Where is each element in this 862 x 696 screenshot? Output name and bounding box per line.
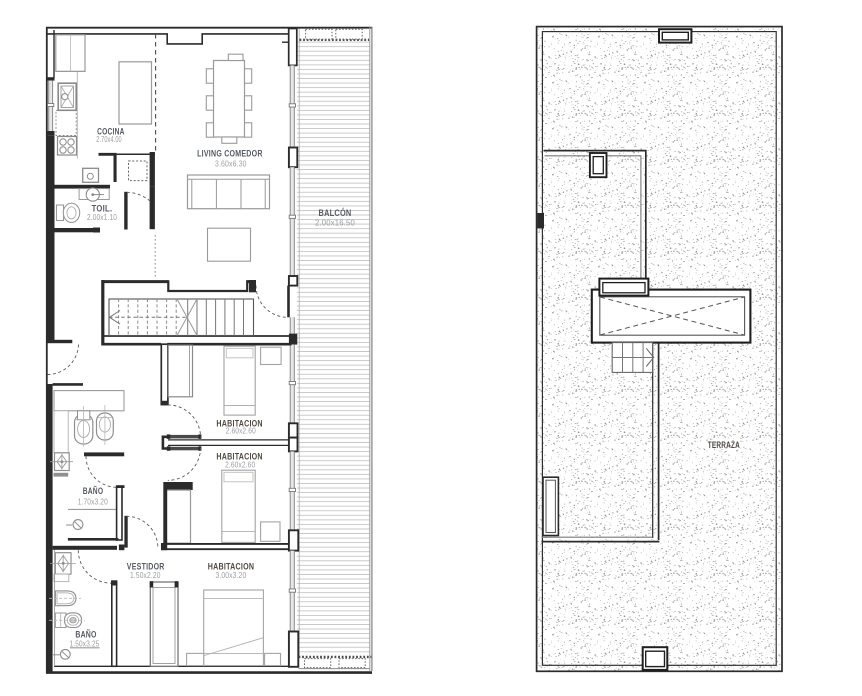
svg-text:2.60x2.60: 2.60x2.60: [226, 426, 256, 436]
svg-text:LIVING COMEDOR: LIVING COMEDOR: [197, 148, 263, 158]
svg-text:2.60x2.60: 2.60x2.60: [225, 459, 255, 469]
svg-text:3.00x3.20: 3.00x3.20: [215, 570, 246, 580]
svg-text:TERRAZA: TERRAZA: [708, 440, 740, 450]
svg-text:2.00x16.50: 2.00x16.50: [315, 218, 355, 228]
svg-text:3.60x6.30: 3.60x6.30: [215, 158, 247, 168]
svg-text:1.50x3.25: 1.50x3.25: [70, 638, 100, 648]
svg-text:1.70x3.20: 1.70x3.20: [78, 496, 108, 506]
svg-text:1.50x2.20: 1.50x2.20: [130, 570, 161, 580]
svg-text:BAÑO: BAÑO: [83, 486, 104, 496]
svg-text:2.00x1.10: 2.00x1.10: [87, 212, 117, 222]
svg-text:2.70x4.00: 2.70x4.00: [96, 134, 122, 144]
svg-text:BALCÓN: BALCÓN: [319, 207, 352, 218]
